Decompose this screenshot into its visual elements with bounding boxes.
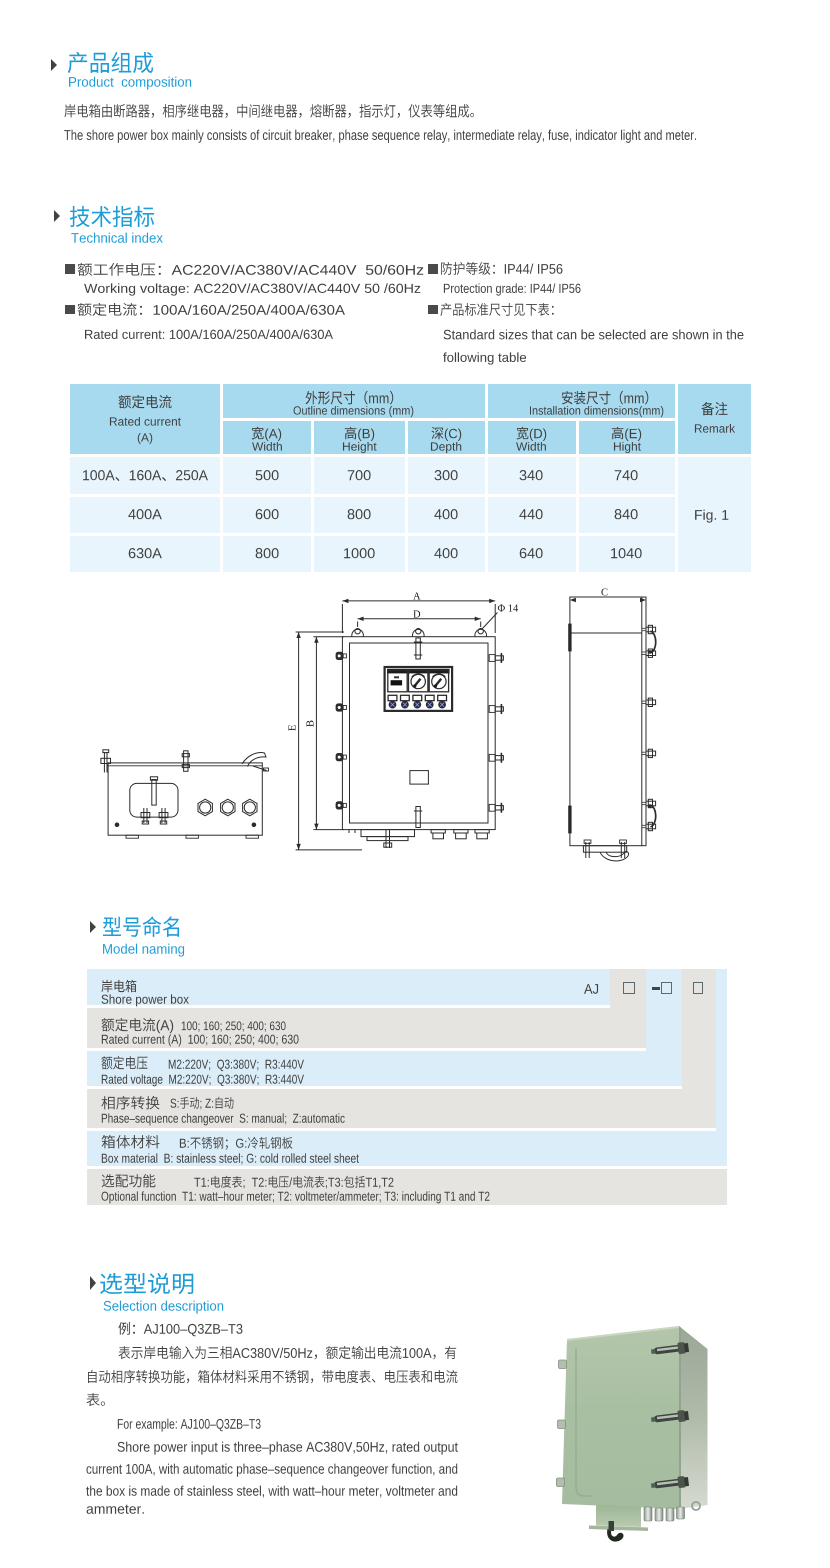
svg-text:A: A <box>413 591 421 602</box>
svg-text:B: B <box>305 720 316 727</box>
svg-text:E: E <box>288 725 299 731</box>
svg-text:D: D <box>413 609 421 620</box>
svg-text:C: C <box>601 587 608 598</box>
svg-text:Φ 14: Φ 14 <box>498 604 520 615</box>
